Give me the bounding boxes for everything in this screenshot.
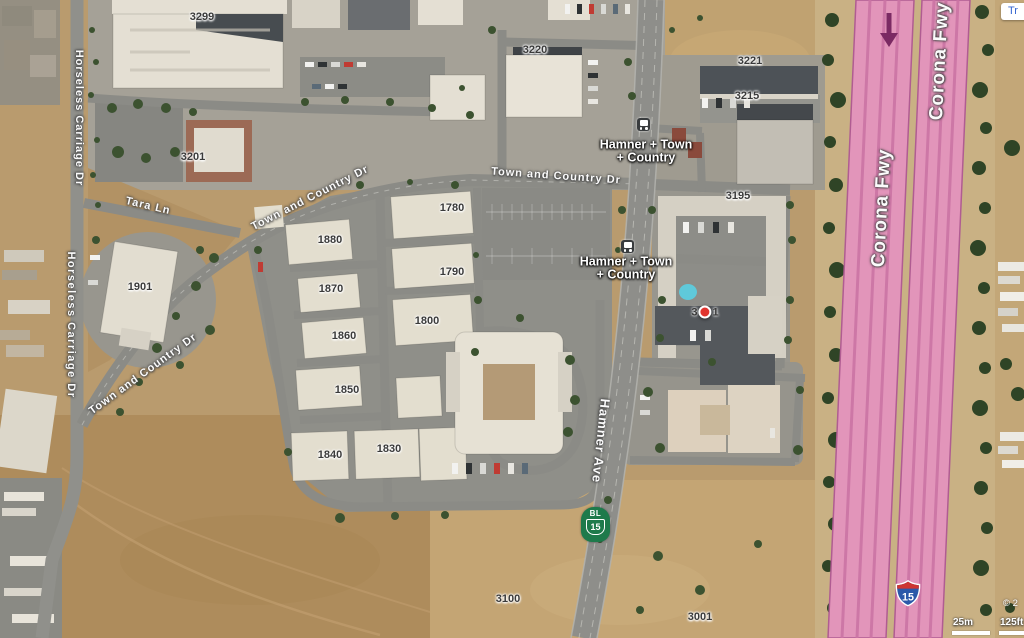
location-marker[interactable] <box>699 306 712 319</box>
bus-wheel <box>624 249 627 252</box>
scale-metric-bar <box>952 631 990 635</box>
business-loop-number: 15 <box>586 519 605 535</box>
marker-label-prefix: 3 <box>691 306 697 318</box>
bus-wheel <box>645 127 648 130</box>
satellite-imagery <box>0 0 1024 638</box>
bus-wheel <box>629 249 632 252</box>
interstate-number: 15 <box>902 592 914 604</box>
bus-window <box>640 120 648 126</box>
business-loop-15-shield: BL 15 <box>581 507 610 542</box>
bus-stop-icon[interactable] <box>621 240 634 253</box>
marker-label-suffix: 1 <box>713 306 719 318</box>
map-marker-group: 3 1 <box>691 306 718 319</box>
bus-wheel <box>640 127 643 130</box>
traffic-button[interactable]: Tr <box>1001 3 1024 20</box>
bus-window <box>624 242 632 248</box>
business-loop-label: BL <box>590 509 602 519</box>
interstate-15-shield: 15 <box>895 579 921 607</box>
satellite-map-canvas[interactable]: Horseless Carriage Dr Horseless Carriage… <box>0 0 1024 638</box>
scale-imperial-bar <box>999 631 1024 635</box>
bus-stop-icon[interactable] <box>637 118 650 131</box>
